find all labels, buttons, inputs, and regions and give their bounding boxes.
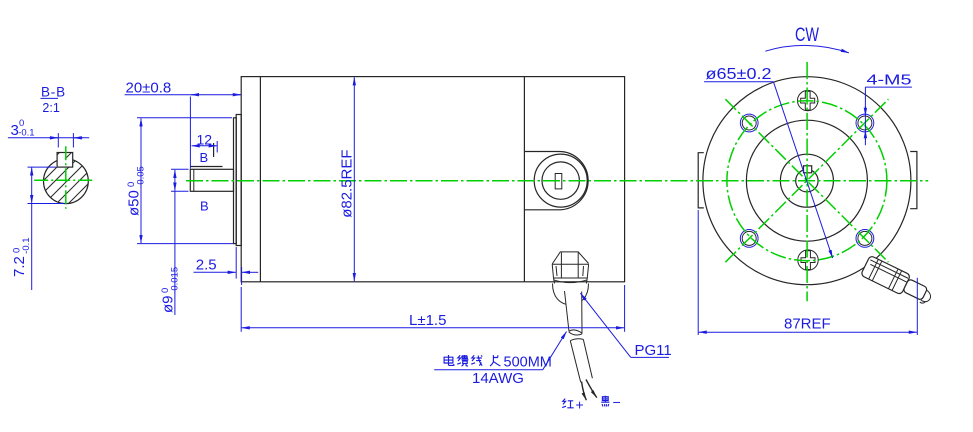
svg-text:7.2: 7.2 [11,256,28,277]
svg-text:-0.1: -0.1 [21,237,32,253]
svg-text:CW: CW [795,25,819,46]
svg-text:ø50: ø50 [126,190,143,216]
svg-text:500MM: 500MM [504,355,552,371]
svg-text:2:1: 2:1 [42,101,59,115]
svg-text:20±0.8: 20±0.8 [126,80,172,97]
svg-text:ø65±0.2: ø65±0.2 [706,66,772,83]
svg-text:PG11: PG11 [635,342,672,359]
svg-text:14AWG: 14AWG [472,370,524,387]
svg-text:4-M5: 4-M5 [867,72,912,89]
svg-text:-0.05: -0.05 [136,166,147,188]
svg-text:12: 12 [197,131,213,147]
svg-text:87REF: 87REF [784,316,831,333]
svg-text:−: − [613,394,621,410]
svg-text:+: + [576,397,584,413]
svg-text:ø9: ø9 [160,295,177,313]
svg-text:-0.1: -0.1 [18,128,34,139]
svg-text:L±1.5: L±1.5 [409,312,446,329]
svg-text:ø82.5REF: ø82.5REF [339,149,356,217]
svg-text:B: B [200,150,209,165]
svg-text:B-B: B-B [41,85,66,100]
svg-text:B: B [200,199,209,214]
svg-text:2.5: 2.5 [196,256,217,273]
svg-text:-0.015: -0.015 [170,267,181,294]
